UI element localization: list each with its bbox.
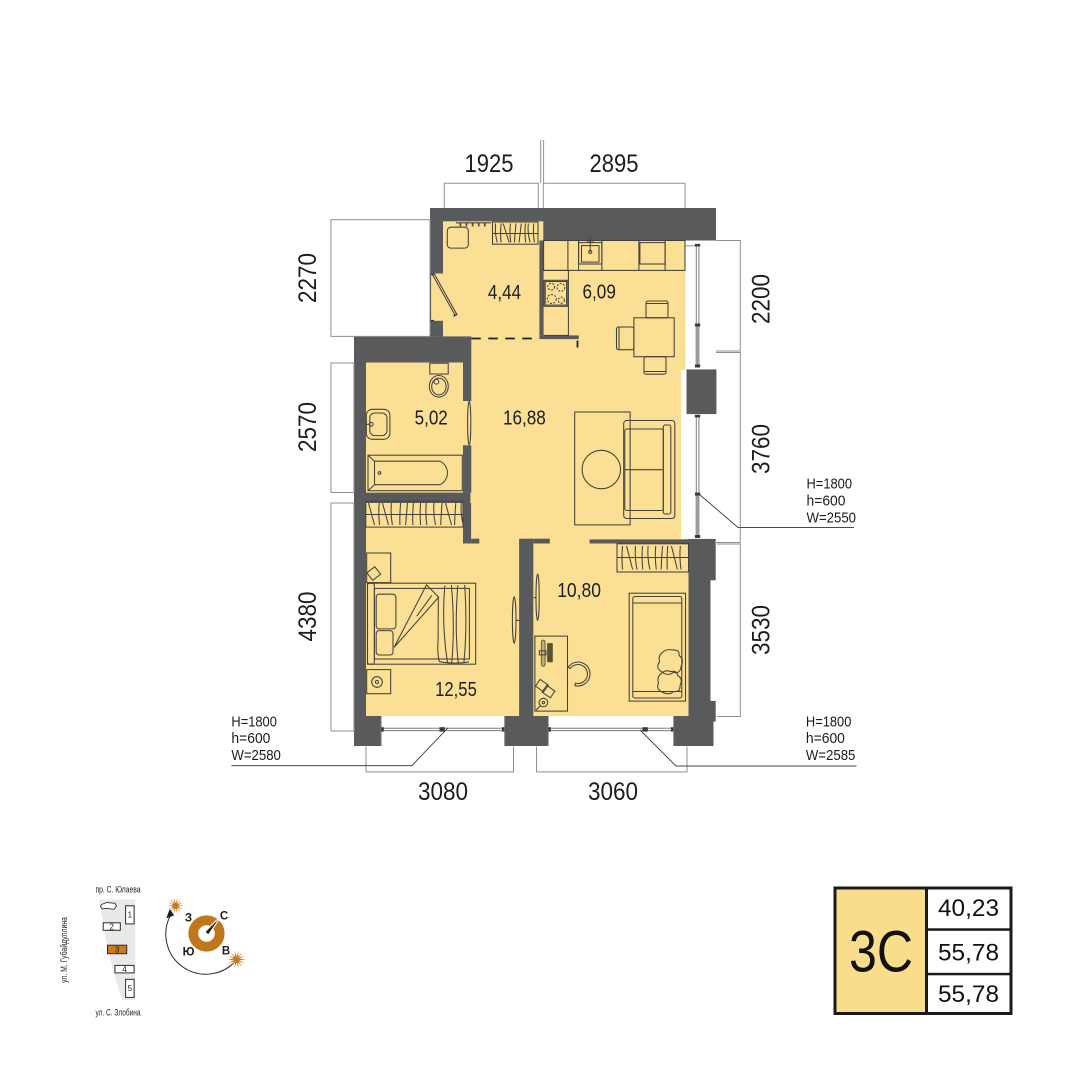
svg-text:С: С (220, 911, 228, 923)
svg-text:6,09: 6,09 (583, 281, 616, 303)
svg-text:40,23: 40,23 (938, 895, 999, 922)
svg-text:55,78: 55,78 (938, 940, 999, 967)
svg-text:3760: 3760 (748, 424, 776, 474)
svg-text:H=1800: H=1800 (806, 713, 852, 730)
svg-text:2200: 2200 (748, 274, 776, 324)
svg-text:З: З (185, 913, 192, 925)
svg-text:ул. М. Губайдуллина: ул. М. Губайдуллина (59, 917, 69, 983)
svg-text:2570: 2570 (294, 402, 322, 452)
svg-text:5: 5 (128, 984, 133, 993)
svg-text:4,44: 4,44 (488, 282, 521, 304)
svg-text:2895: 2895 (590, 150, 639, 178)
svg-text:12,55: 12,55 (435, 679, 477, 701)
svg-text:ул. С. Злобина: ул. С. Злобина (96, 1008, 141, 1018)
svg-text:55,78: 55,78 (938, 981, 999, 1008)
svg-text:10,80: 10,80 (557, 580, 601, 602)
svg-text:5,02: 5,02 (415, 407, 448, 429)
svg-text:W=2550: W=2550 (807, 510, 857, 527)
svg-text:1925: 1925 (465, 150, 514, 178)
svg-text:3080: 3080 (418, 778, 468, 806)
svg-text:H=1800: H=1800 (231, 713, 277, 730)
svg-text:16,88: 16,88 (503, 408, 546, 430)
svg-text:Ю: Ю (183, 947, 195, 959)
svg-text:W=2580: W=2580 (231, 747, 281, 764)
svg-text:W=2585: W=2585 (806, 747, 856, 764)
svg-text:3: 3 (115, 945, 120, 954)
svg-text:3060: 3060 (588, 778, 638, 806)
svg-text:2: 2 (109, 922, 114, 931)
svg-text:3530: 3530 (748, 605, 776, 655)
svg-text:2270: 2270 (294, 253, 322, 303)
svg-text:4380: 4380 (294, 592, 322, 642)
svg-text:В: В (222, 946, 230, 958)
svg-text:пр. С. Юлаева: пр. С. Юлаева (96, 885, 141, 895)
svg-text:3С: 3С (849, 920, 913, 985)
svg-text:h=600: h=600 (231, 730, 270, 747)
svg-text:H=1800: H=1800 (807, 476, 853, 493)
svg-text:h=600: h=600 (807, 493, 846, 510)
svg-text:4: 4 (122, 965, 127, 974)
svg-text:1: 1 (128, 911, 133, 920)
svg-text:h=600: h=600 (806, 730, 845, 747)
